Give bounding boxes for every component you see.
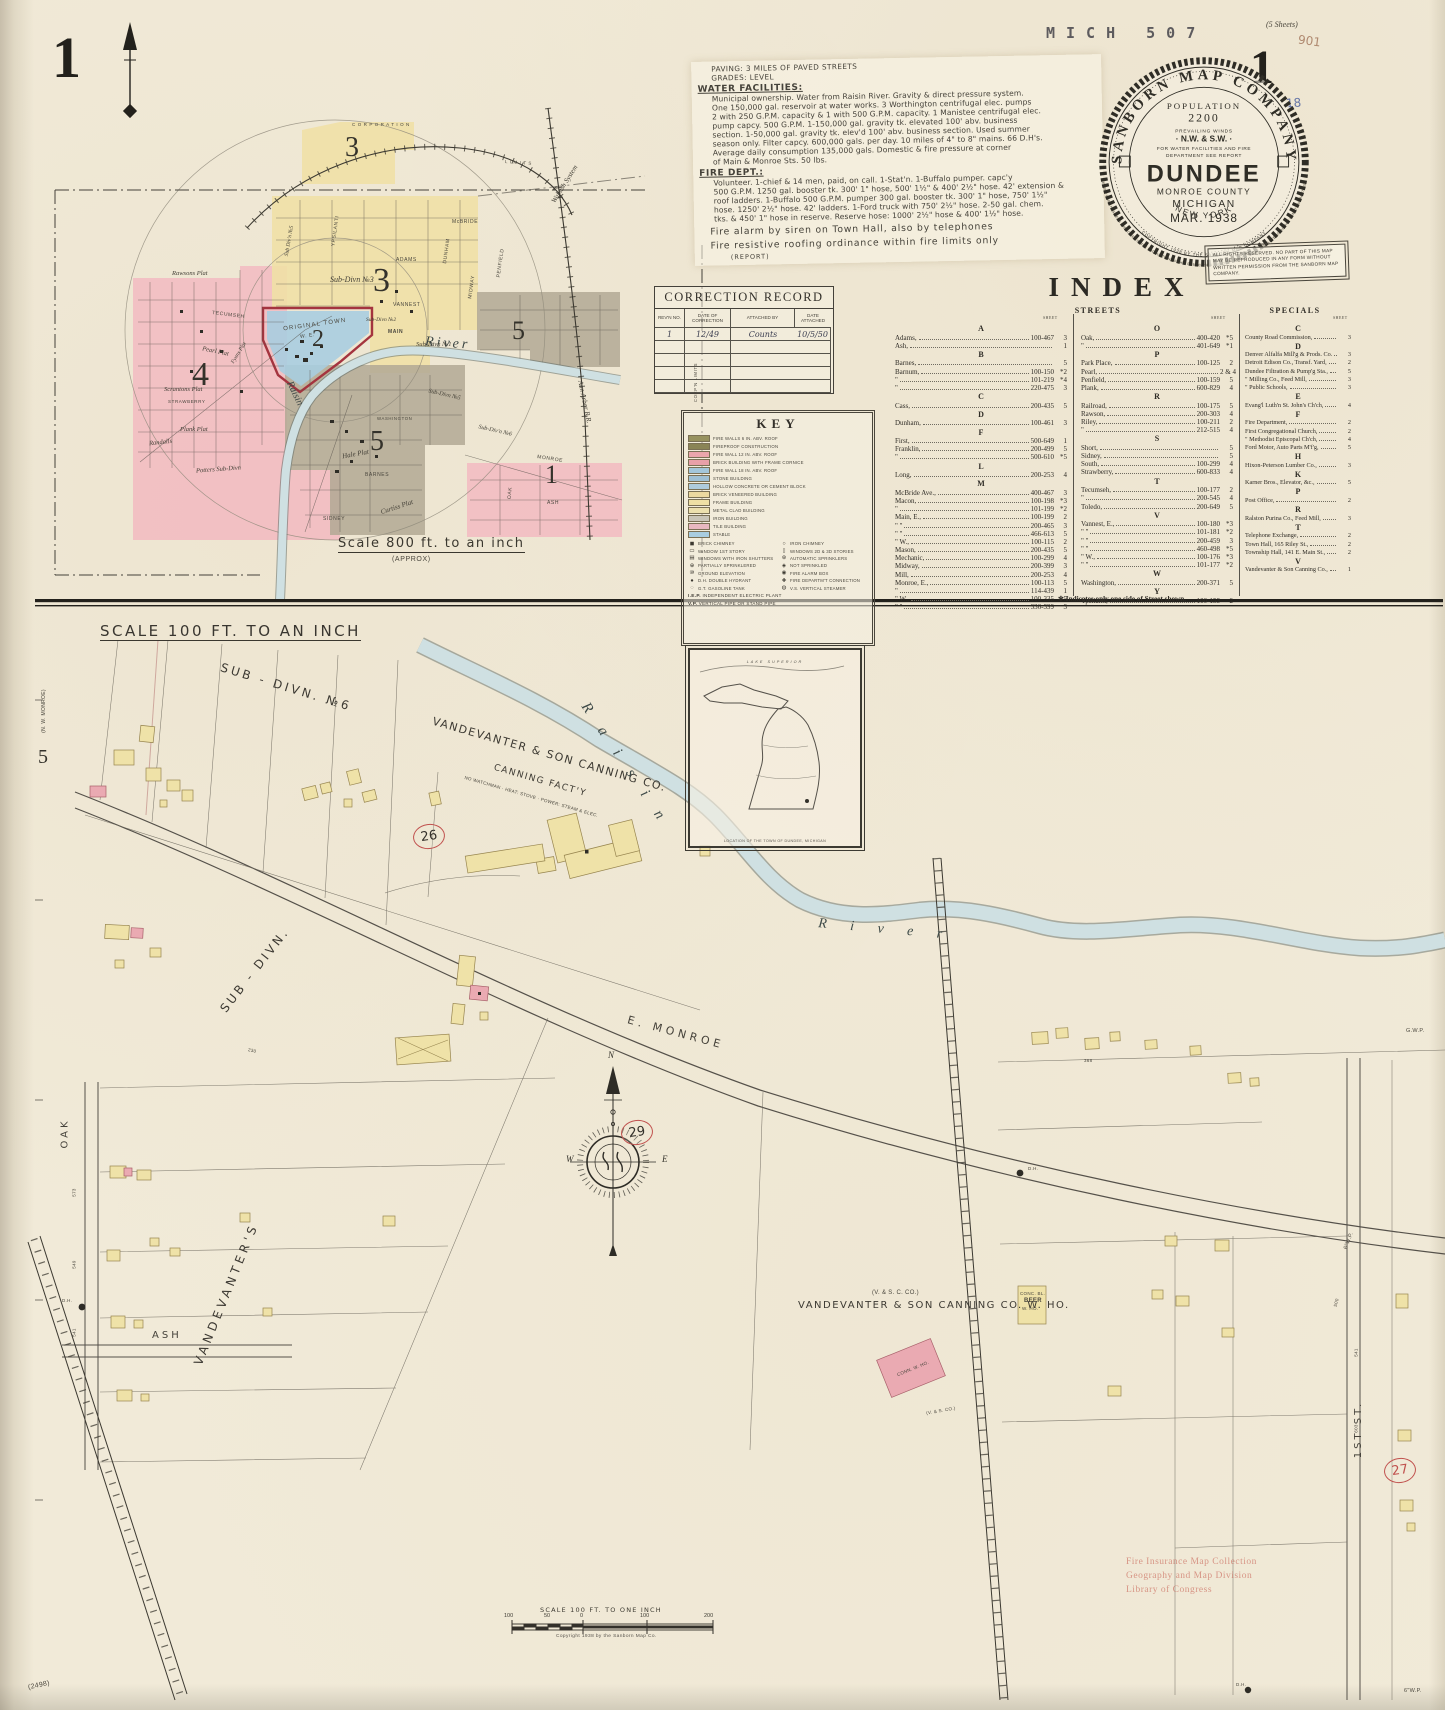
index-street-row: Washington, 200-371 5 [1081, 579, 1233, 587]
index-street-row: South, 100-299 4 [1081, 460, 1233, 468]
index-letter: H [1245, 452, 1351, 462]
key-symbol-glyph: ● [688, 578, 696, 584]
index-street-row: " " 466-613 5 [895, 530, 1067, 538]
seal-city: DUNDEE [1147, 162, 1261, 188]
index-street-row: Toledo, 200-649 5 [1081, 503, 1233, 511]
index-letter: A [895, 324, 1067, 334]
key-symbol-item: ▯ WINDOWS 2D & 3D STORIES [780, 547, 868, 554]
index-street-row: " " 460-498 *5 [1081, 545, 1233, 553]
key-symbol-item: ◍ V.S. VERTICAL STEAMER [780, 584, 868, 591]
key-item: BRICK BUILDING WITH FRAME CORNICE [688, 458, 868, 466]
index-letter: T [1245, 523, 1351, 533]
key-item: HOLLOW CONCRETE OR CEMENT BLOCK [688, 482, 868, 490]
index-letter: D [895, 410, 1067, 420]
index-street-row: Barnes, 5 [895, 359, 1067, 367]
seal-date: MAR. 1938 [1170, 211, 1238, 225]
sheets-note: (5 Sheets) [1266, 20, 1298, 29]
correction-attached-by: Counts [731, 328, 795, 341]
index-streets-header: STREETS [953, 306, 1243, 315]
michigan-inset-map: LAKE SUPERIOR LOCATION OF THE TOWN OF DU… [688, 648, 862, 848]
index-letter: K [1245, 470, 1351, 480]
key-item: FIREPROOF CONSTRUCTION [688, 442, 868, 450]
index-special-row: Denver Alfalfa Mill'g & Prods. Co. 3 [1245, 351, 1351, 359]
seal-note2: DEPARTMENT SEE REPORT [1166, 153, 1242, 159]
index-special-row: Evang'l Luth'n St. John's Ch'ch, 4 [1245, 402, 1351, 410]
index-street-row: McBride Ave., 400-467 3 [895, 489, 1067, 497]
correction-date-attached [795, 380, 831, 393]
correction-date: 12/49 [685, 328, 731, 341]
seal-population: 2200 [1188, 111, 1219, 125]
index-street-row: Plank, 600-829 4 [1081, 384, 1233, 392]
index-street-row: Strawberry, 600-833 4 [1081, 468, 1233, 476]
inset-caption: LOCATION OF THE TOWN OF DUNDEE, MICHIGAN [690, 839, 860, 843]
index-street-row: " " 101-177 *2 [1081, 561, 1233, 569]
key-symbol-glyph: ◈ [780, 563, 788, 569]
index-street-row: Park Place, 100-125 2 [1081, 359, 1233, 367]
inset-lake-label: LAKE SUPERIOR [690, 660, 860, 664]
index-street-row: " W., 100-176 *3 [1081, 553, 1233, 561]
key-item: FIRE WALLS 6 IN. ABV. ROOF [688, 434, 868, 442]
key-symbol-glyph: ○ [780, 541, 788, 547]
key-symbol-list: ◼ BRICK CHIMNEY ○ IRON CHIMNEY ▭ WINDOW … [688, 540, 868, 592]
index-letter: R [1245, 505, 1351, 515]
key-symbol-item: ◌ G.T. GASOLINE TANK [688, 584, 776, 591]
key-item: TILE BUILDING [688, 522, 868, 530]
seal-county: MONROE COUNTY [1157, 186, 1251, 196]
index-letter: E [1245, 392, 1351, 402]
index-letter: F [1245, 410, 1351, 420]
key-symbol-item: ◉ FIRE ALARM BOX [780, 570, 868, 577]
index-special-row: Post Office, 2 [1245, 497, 1351, 505]
correction-attached-by [731, 367, 795, 380]
correction-date [685, 354, 731, 367]
index-street-row: " " 336-399 3 [895, 603, 1067, 611]
edge-ticks [35, 700, 43, 1500]
index-street-row: Franklin, 200-499 5 [895, 445, 1067, 453]
correction-date [685, 341, 731, 354]
correction-revn [655, 341, 685, 354]
index-special-row: Dundee Filtration & Pump'g Sta., 5 [1245, 368, 1351, 376]
main-railroads [28, 858, 1008, 1700]
index-special-row: " Public Schools, 3 [1245, 384, 1351, 392]
index-sheet-label: SHEET [1211, 316, 1226, 320]
index-special-row: First Congregational Church, 2 [1245, 428, 1351, 436]
index-special-row: Detroit Edison Co., Transf. Yard, 2 [1245, 359, 1351, 367]
index-street-row: Long, 200-253 4 [895, 471, 1067, 479]
key-symbol-item: ⊛ AUTOMATIC SPRINKLERS [780, 555, 868, 562]
mich-507-stamp: MICH 507 [1046, 24, 1206, 42]
seal-population-label: POPULATION [1167, 101, 1241, 111]
key-symbol-item: ✚ FIRE DEPARTM'T CONNECTION [780, 577, 868, 584]
key-symbol-glyph: ⊕ [688, 563, 696, 569]
correction-record-rows: 1 12/49 Counts 10/5/50 [655, 328, 833, 393]
correction-revn [655, 367, 685, 380]
key-swatch [688, 507, 710, 514]
correction-revn [655, 354, 685, 367]
key-footnotes: I.E.P. INDEPENDENT ELECTRIC PLANT V.P. V… [688, 593, 868, 607]
key-swatch-list: FIRE WALLS 6 IN. ABV. ROOF FIREPROOF CON… [688, 434, 868, 538]
index-street-row: " " 200-465 3 [895, 522, 1067, 530]
index-street-row: Penfield, 100-159 5 [1081, 376, 1233, 384]
index-letter: P [1081, 350, 1233, 360]
index-street-row: " 212-515 4 [1081, 426, 1233, 434]
key-symbol-glyph: ◍ [780, 585, 788, 591]
index-street-row: Short, 5 [1081, 444, 1233, 452]
key-symbol-glyph: ◼ [688, 541, 696, 547]
key-symbol-item: ○ IRON CHIMNEY [780, 540, 868, 547]
index-street-row: First, 500-649 1 [895, 437, 1067, 445]
correction-record-table: REV'N NO. DATE OF CORRECTION ATTACHED BY… [655, 309, 833, 328]
key-symbol-glyph: ▭ [688, 548, 696, 554]
index-letter: C [1245, 324, 1351, 334]
index-street-column-1: A Adams, 100-467 3 Ash, [895, 324, 1067, 612]
index-street-row: Cass, 200-435 5 [895, 402, 1067, 410]
index-street-row: Tecumseh, 100-177 2 [1081, 486, 1233, 494]
index-special-row: Telephone Exchange, 2 [1245, 532, 1351, 540]
key-symbol-glyph: ⑩ [688, 570, 696, 576]
sanborn-map-sheet: 1 MICH 507 (5 Sheets) 901 18 1 PAVING: 3… [0, 0, 1445, 1710]
index-street-row: " W., 100-115 2 [895, 538, 1067, 546]
index-note: ✻ Indicates only one side of Street show… [893, 594, 1351, 603]
index-street-row: " 401-649 *1 [1081, 342, 1233, 350]
sheet-number-left: 1 [52, 24, 81, 91]
index-special-row: Township Hall, 141 E. Main St., 2 [1245, 549, 1351, 557]
correction-revn: 1 [655, 328, 685, 341]
key-symbol-item: ⑩ GROUND ELEVATION [688, 570, 776, 577]
key-symbol-glyph: ▯ [780, 548, 788, 554]
key-swatch [688, 515, 710, 522]
key-symbol-item: ● D.H. DOUBLE HYDRANT [688, 577, 776, 584]
index-street-row: " 220-475 3 [895, 384, 1067, 392]
key-swatch [688, 467, 710, 474]
index-special-row: " Milling Co., Feed Mill, 3 [1245, 376, 1351, 384]
seal-winds: · N.W. & S.W. · [1176, 133, 1233, 143]
key-symbol-glyph: ◌ [688, 585, 696, 591]
index-sheet-label: SHEET [1333, 316, 1348, 320]
correction-date-attached: 10/5/50 [795, 328, 831, 341]
key-item: STONE BUILDING [688, 474, 868, 482]
key-symbol-glyph: ◉ [780, 570, 788, 576]
loc-stamp-line: Geography and Map Division [1126, 1570, 1257, 1584]
correction-date-attached [795, 354, 831, 367]
index-street-row: " 101-219 *4 [895, 376, 1067, 384]
index-street-row: Adams, 100-467 3 [895, 334, 1067, 342]
key-symbol-glyph: ✚ [780, 578, 788, 584]
index-street-row: " " 200-459 3 [1081, 537, 1233, 545]
index-title: INDEX [893, 272, 1351, 303]
correction-attached-by [731, 354, 795, 367]
index-letter: L [895, 462, 1067, 472]
index-letter: C [895, 392, 1067, 402]
key-footnote: V.P. VERTICAL PIPE OR STAND PIPE [688, 601, 868, 607]
seal-state: MICHIGAN [1172, 199, 1235, 210]
index-letter: B [895, 350, 1067, 360]
index-letter: T [1081, 477, 1233, 487]
key-symbol-glyph: ⊛ [780, 555, 788, 561]
index-letter: R [1081, 392, 1233, 402]
index-special-row: County Road Commission, 3 [1245, 334, 1351, 342]
index-street-row: Barnum, 100-150 *2 [895, 368, 1067, 376]
index-specials-header: SPECIALS [1239, 306, 1351, 315]
index-letter: V [1245, 557, 1351, 567]
key-symbol-item: ▭ WINDOW 1ST STORY [688, 547, 776, 554]
main-river [420, 645, 1445, 948]
index-street-row: Mason, 200-435 5 [895, 546, 1067, 554]
key-symbol-item: ◈ NOT SPRINKLED [780, 562, 868, 569]
key-swatch [688, 475, 710, 482]
correction-attached-by [731, 341, 795, 354]
index-street-column-2: O Oak, 400-420 *5 " [1081, 324, 1233, 605]
key-swatch [688, 483, 710, 490]
index-column-rule [1073, 314, 1074, 596]
index-letter: P [1245, 487, 1351, 497]
key-swatch [688, 451, 710, 458]
key-swatch [688, 443, 710, 450]
key-symbol-item: ◼ BRICK CHIMNEY [688, 540, 776, 547]
index-street-row: " " 101-181 *2 [1081, 528, 1233, 536]
key-symbol-glyph: ▤ [688, 555, 696, 561]
scale-bar [512, 1620, 713, 1634]
index-street-row: Dunham, 100-461 3 [895, 419, 1067, 427]
index-street-row: Mill, 200-253 4 [895, 571, 1067, 579]
main-buildings-pink [90, 786, 945, 1397]
index-street-row: " 500-610 *5 [895, 453, 1067, 461]
correction-revn [655, 380, 685, 393]
index-street-row: Midway, 200-399 3 [895, 562, 1067, 570]
index-street-row: Ash, 1 [895, 342, 1067, 350]
key-item: IRON BUILDING [688, 514, 868, 522]
index-letter: M [895, 479, 1067, 489]
key-item: FIRE WALL 18 IN. ABV. ROOF [688, 466, 868, 474]
index-special-row: Vandevanter & Son Canning Co., 1 [1245, 566, 1351, 574]
index-letter: W [1081, 569, 1233, 579]
index-special-row: Ralston Purina Co., Feed Mill, 3 [1245, 515, 1351, 523]
key-item: FRAME BUILDING [688, 498, 868, 506]
north-arrow-icon [108, 20, 152, 120]
key-swatch [688, 435, 710, 442]
index-letter: O [1081, 324, 1233, 334]
index-street-row: " 101-199 *2 [895, 505, 1067, 513]
correction-record: CORRECTION RECORD REV'N NO. DATE OF CORR… [654, 286, 834, 394]
index-street-row: Pearl, 2 & 4 [1081, 368, 1233, 376]
index-special-row: " Methodist Episcopal Ch'ch, 4 [1245, 436, 1351, 444]
index-letter: S [1081, 434, 1233, 444]
overview-zones [133, 122, 622, 540]
correction-date-attached [795, 367, 831, 380]
chimney-dots [79, 850, 1252, 1693]
correction-attached-by [731, 380, 795, 393]
seal-note1: FOR WATER FACILITIES AND FIRE [1157, 146, 1251, 152]
key-swatch [688, 491, 710, 498]
index-street-row: Main, E., 100-199 2 [895, 513, 1067, 521]
index-letter: F [895, 428, 1067, 438]
index-street-row: Vannest, E., 100-180 *3 [1081, 520, 1233, 528]
correction-col-header: REV'N NO. [655, 309, 685, 328]
index-street-row: Oak, 400-420 *5 [1081, 334, 1233, 342]
key-swatch [688, 499, 710, 506]
index-special-row: Karner Bros., Elevator, &c., 5 [1245, 479, 1351, 487]
key-item: STABLE [688, 530, 868, 538]
street-index: INDEX STREETS SPECIALS SHEET SHEET SHEET… [893, 272, 1351, 608]
compass-rose [570, 1066, 656, 1256]
key-item: METAL CLAD BUILDING [688, 506, 868, 514]
index-street-row: Railroad, 100-175 5 [1081, 402, 1233, 410]
key-swatch [688, 531, 710, 538]
index-special-row: Ford Motor, Auto Parts M'f'g, 5 [1245, 444, 1351, 452]
map-key: KEY FIRE WALLS 6 IN. ABV. ROOF FIREPROOF… [683, 412, 873, 644]
index-special-row: Fire Department, 2 [1245, 419, 1351, 427]
correction-col-header: DATE OF CORRECTION [685, 309, 731, 328]
index-column-rule [1239, 314, 1240, 596]
sanborn-seal: SANBORN MAP COMPANY NEW YORK COPYRIGHT 1… [1086, 44, 1322, 280]
index-special-row: Town Hall, 165 Riley St., 2 [1245, 541, 1351, 549]
loc-stamp-line: Library of Congress [1126, 1584, 1257, 1598]
index-sheet-label: SHEET [1043, 316, 1058, 320]
index-street-row: Macon, 100-198 *3 [895, 497, 1067, 505]
index-street-row: Rawson, 200-303 4 [1081, 410, 1233, 418]
index-street-row: Riley, 100-211 2 [1081, 418, 1233, 426]
index-letter: V [1081, 511, 1233, 521]
correction-col-header: DATE ATTACHED [795, 309, 831, 328]
key-swatch [688, 523, 710, 530]
index-street-row: Sidney, 5 [1081, 452, 1233, 460]
key-item: FIRE WALL 12 IN. ABV. ROOF [688, 450, 868, 458]
index-letter: D [1245, 342, 1351, 352]
index-street-row: Monroe, E., 100-113 5 [895, 579, 1067, 587]
index-street-row: Mechanic, 100-299 4 [895, 554, 1067, 562]
key-title: KEY [688, 416, 868, 432]
correction-record-title: CORRECTION RECORD [655, 287, 833, 309]
key-footnote: I.E.P. INDEPENDENT ELECTRIC PLANT [688, 593, 868, 599]
index-special-row: Hixon-Peterson Lumber Co., 3 [1245, 462, 1351, 470]
key-symbol-item: ⊕ PARTIALLY SPRINKLERED [688, 562, 776, 569]
water-fire-report: PAVING: 3 MILES OF PAVED STREETS GRADES:… [691, 54, 1105, 266]
michigan-outline [690, 650, 854, 840]
key-symbol-item: ▤ WINDOWS WITH IRON SHUTTERS [688, 555, 776, 562]
index-street-row: " 200-545 4 [1081, 494, 1233, 502]
correction-date [685, 380, 731, 393]
correction-date [685, 367, 731, 380]
key-item: BRICK VENEERED BUILDING [688, 490, 868, 498]
key-swatch [688, 459, 710, 466]
index-specials-column: C County Road Commission, 3 D [1245, 324, 1351, 575]
loc-stamp-line: Fire Insurance Map Collection [1126, 1556, 1257, 1570]
correction-date-attached [795, 341, 831, 354]
library-of-congress-stamp: Fire Insurance Map Collection Geography … [1126, 1556, 1257, 1597]
correction-col-header: ATTACHED BY [731, 309, 795, 328]
